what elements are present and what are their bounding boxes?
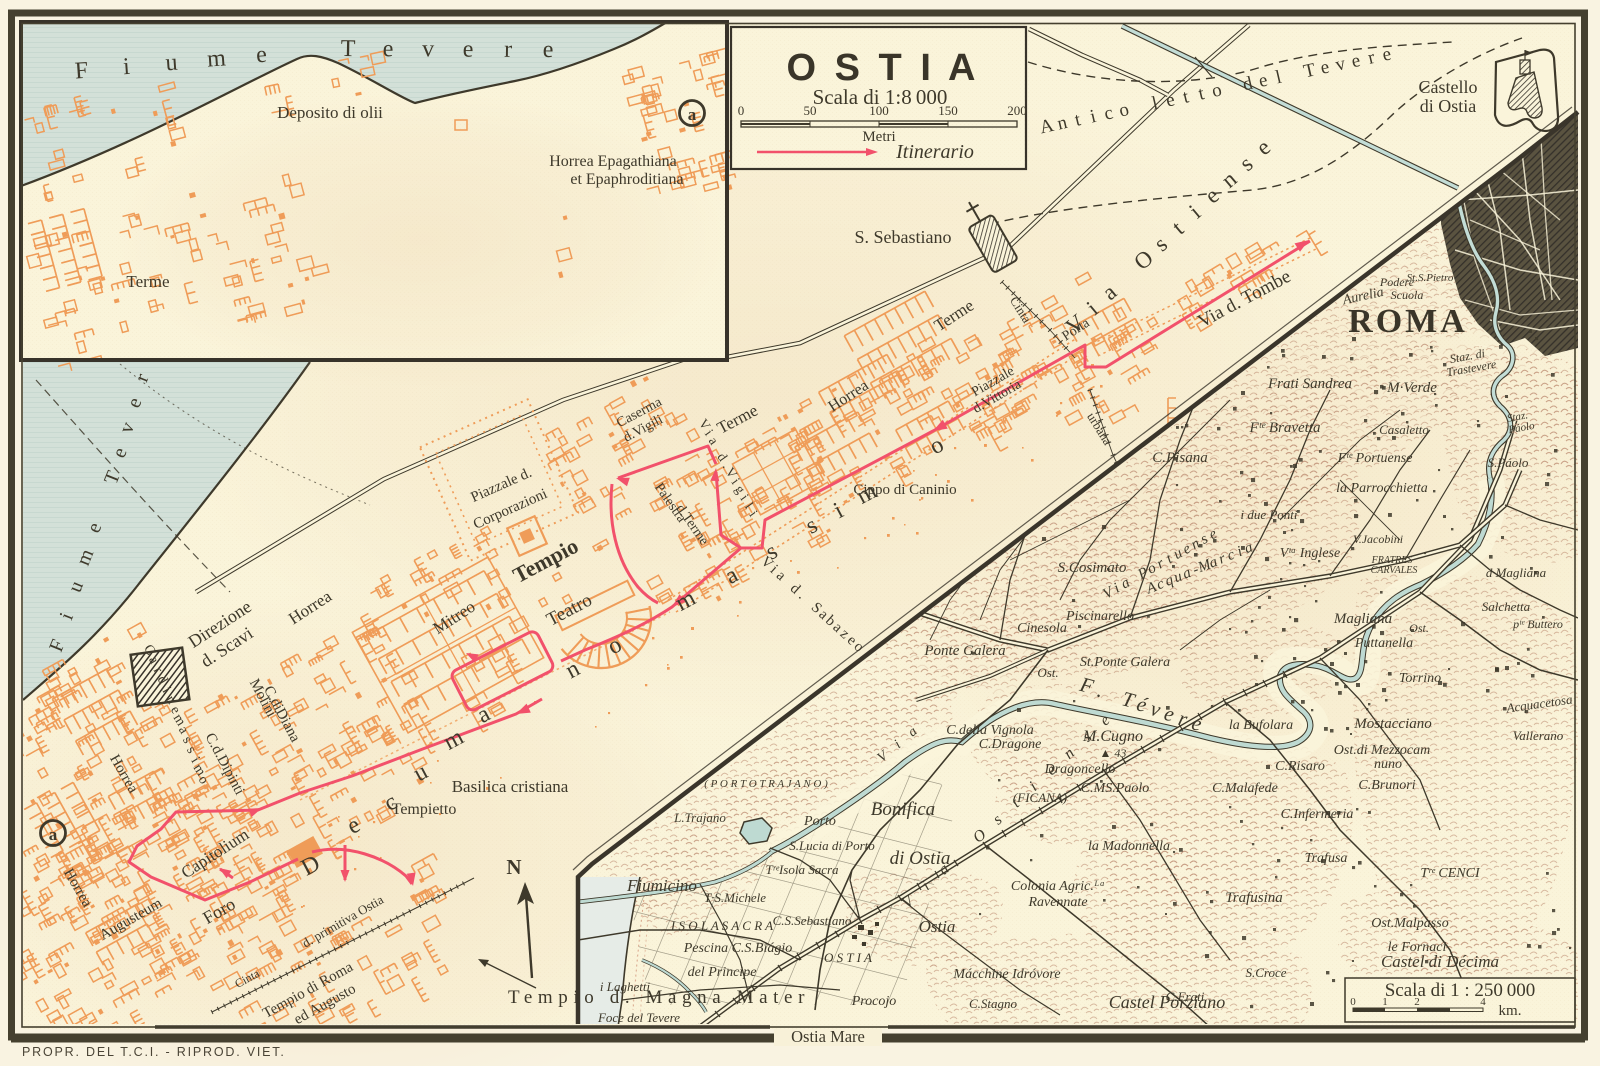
svg-text:Piscinarello: Piscinarello bbox=[1065, 609, 1134, 624]
svg-text:ROMA: ROMA bbox=[1348, 303, 1468, 340]
svg-text:0: 0 bbox=[1350, 996, 1356, 1008]
svg-text:Bonifica: Bonifica bbox=[871, 799, 935, 820]
svg-text:S. Sebastiano: S. Sebastiano bbox=[855, 227, 952, 247]
svg-text:Tempio d. Magna Mater: Tempio d. Magna Mater bbox=[508, 987, 810, 1008]
svg-text:del Principe: del Principe bbox=[688, 965, 757, 980]
svg-text:0: 0 bbox=[738, 103, 745, 118]
svg-text:Ravennate: Ravennate bbox=[1027, 895, 1087, 910]
svg-text:Vᵗᵃ Inglese: Vᵗᵃ Inglese bbox=[1280, 546, 1340, 561]
svg-text:a: a bbox=[688, 105, 697, 124]
svg-text:Scala di 1 : 250 000: Scala di 1 : 250 000 bbox=[1385, 980, 1536, 1001]
svg-text:Tʳᵉ CENCI: Tʳᵉ CENCI bbox=[1420, 866, 1481, 881]
svg-text:Trafusina: Trafusina bbox=[1225, 890, 1283, 906]
svg-text:Trafusa: Trafusa bbox=[1305, 851, 1348, 866]
svg-text:C.Dragone: C.Dragone bbox=[979, 737, 1042, 752]
svg-text:e: e bbox=[543, 37, 554, 63]
svg-text:Ost.di Mezzocam: Ost.di Mezzocam bbox=[1334, 743, 1430, 758]
svg-text:C.S.Sebastiano: C.S.Sebastiano bbox=[773, 913, 852, 928]
svg-text:Ost.Malpasso: Ost.Malpasso bbox=[1371, 916, 1448, 931]
svg-text:Ost.: Ost. bbox=[1409, 621, 1429, 635]
svg-text:Ponte Galera: Ponte Galera bbox=[923, 643, 1005, 659]
svg-text:Ost.: Ost. bbox=[1037, 665, 1058, 680]
svg-text:C.Infermeria: C.Infermeria bbox=[1281, 807, 1354, 822]
svg-text:C.della Vignola: C.della Vignola bbox=[946, 723, 1034, 738]
svg-text:C.Brunori: C.Brunori bbox=[1358, 778, 1415, 793]
svg-text:PROPR. DEL T.C.I. - RIPROD. VI: PROPR. DEL T.C.I. - RIPROD. VIET. bbox=[22, 1045, 286, 1059]
svg-text:O S T I A: O S T I A bbox=[824, 950, 872, 965]
svg-text:C.Malafede: C.Malafede bbox=[1212, 781, 1278, 796]
svg-text:Vallerano: Vallerano bbox=[1513, 728, 1564, 743]
svg-text:200: 200 bbox=[1007, 103, 1027, 118]
svg-text:50: 50 bbox=[804, 103, 817, 118]
svg-text:Casaletto: Casaletto bbox=[1379, 422, 1429, 437]
svg-text:( P O R T O T R A J A N O ): ( P O R T O T R A J A N O ) bbox=[704, 778, 828, 790]
svg-text:150: 150 bbox=[938, 103, 958, 118]
svg-text:TʳᵉIsola Sacra: TʳᵉIsola Sacra bbox=[765, 862, 839, 877]
svg-text:r: r bbox=[504, 37, 512, 63]
svg-text:a: a bbox=[49, 825, 58, 844]
svg-text:S.Cosimato: S.Cosimato bbox=[1058, 560, 1127, 576]
svg-text:Torrino: Torrino bbox=[1399, 671, 1441, 686]
svg-text:T·S.Michele: T·S.Michele bbox=[704, 890, 766, 905]
svg-text:Tempietto: Tempietto bbox=[392, 801, 457, 818]
svg-text:F: F bbox=[74, 58, 89, 85]
svg-text:2: 2 bbox=[1414, 996, 1420, 1008]
svg-text:u: u bbox=[165, 50, 179, 77]
svg-text:Procojo: Procojo bbox=[851, 994, 897, 1009]
svg-text:Fiumicino: Fiumicino bbox=[626, 876, 697, 895]
svg-text:T: T bbox=[341, 36, 356, 62]
svg-text:N: N bbox=[506, 855, 521, 879]
svg-text:Cinesola: Cinesola bbox=[1017, 621, 1067, 636]
svg-text:100: 100 bbox=[869, 103, 889, 118]
svg-text:V.Jacobini: V.Jacobini bbox=[1353, 532, 1403, 546]
svg-text:Itinerario: Itinerario bbox=[895, 141, 974, 163]
svg-text:L.Trajano: L.Trajano bbox=[673, 810, 726, 825]
svg-text:Castel di Décima: Castel di Décima bbox=[1381, 952, 1499, 971]
svg-text:1: 1 bbox=[1382, 996, 1388, 1008]
svg-text:S.Croce: S.Croce bbox=[1245, 965, 1286, 980]
svg-text:St.S.Pietro: St.S.Pietro bbox=[1407, 272, 1454, 284]
svg-text:Castello: Castello bbox=[1419, 77, 1478, 97]
svg-text:Ostia Mare: Ostia Mare bbox=[791, 1027, 865, 1046]
svg-text:d·Magliana: d·Magliana bbox=[1486, 565, 1547, 580]
svg-text:la Madonnella: la Madonnella bbox=[1088, 839, 1170, 854]
svg-text:Metri: Metri bbox=[862, 129, 895, 145]
svg-text:pᵗᵉ Buttero: pᵗᵉ Buttero bbox=[1512, 617, 1563, 631]
svg-text:C.Risaro: C.Risaro bbox=[1275, 759, 1325, 774]
svg-text:O S T I A: O S T I A bbox=[787, 47, 980, 89]
svg-text:Colonia Agric.ᴸᵃ: Colonia Agric.ᴸᵃ bbox=[1011, 879, 1105, 894]
svg-text:Fᵗᵉ Bravetta: Fᵗᵉ Bravetta bbox=[1248, 420, 1320, 436]
svg-text:Basilica cristiana: Basilica cristiana bbox=[452, 777, 569, 796]
svg-text:et Epaphroditiana: et Epaphroditiana bbox=[570, 171, 683, 188]
svg-text:St.Ponte Galera: St.Ponte Galera bbox=[1080, 655, 1170, 670]
svg-text:▲ 43: ▲ 43 bbox=[1100, 746, 1127, 760]
svg-text:m: m bbox=[206, 45, 227, 72]
svg-text:Pescina C.S.Biágio: Pescina C.S.Biágio bbox=[683, 941, 793, 956]
svg-text:Horrea Epagathiana: Horrea Epagathiana bbox=[549, 153, 676, 170]
svg-text:Scuola: Scuola bbox=[1391, 288, 1424, 302]
svg-text:I S O L A S A C R A: I S O L A S A C R A bbox=[670, 918, 773, 933]
svg-text:la Parrocchietta: la Parrocchietta bbox=[1336, 481, 1428, 496]
svg-text:C.Stagno: C.Stagno bbox=[969, 996, 1018, 1011]
svg-text:Puttanella: Puttanella bbox=[1354, 636, 1413, 651]
svg-text:e: e bbox=[463, 37, 474, 63]
svg-text:e: e bbox=[383, 36, 394, 62]
svg-text:la Bufolara: la Bufolara bbox=[1229, 718, 1293, 733]
svg-text:Foce del Tevere: Foce del Tevere bbox=[597, 1010, 680, 1025]
svg-text:Mostacciano: Mostacciano bbox=[1353, 716, 1432, 732]
svg-text:Magliana: Magliana bbox=[1333, 611, 1392, 627]
svg-text:Porto: Porto bbox=[803, 814, 836, 829]
svg-text:v: v bbox=[422, 36, 434, 62]
svg-text:Ostia: Ostia bbox=[919, 917, 956, 936]
svg-text:Castel Porziano: Castel Porziano bbox=[1109, 992, 1226, 1012]
svg-text:km.: km. bbox=[1499, 1003, 1522, 1019]
svg-text:4: 4 bbox=[1480, 996, 1486, 1008]
svg-text:M·Verde: M·Verde bbox=[1386, 380, 1437, 396]
svg-text:S.Páolo: S.Páolo bbox=[1488, 455, 1529, 470]
svg-text:i due Ponti: i due Ponti bbox=[1240, 507, 1297, 522]
svg-text:C.MS.Paolo: C.MS.Paolo bbox=[1081, 781, 1149, 796]
svg-text:Salchetta: Salchetta bbox=[1482, 599, 1531, 614]
svg-text:Fᵗᵉ Portuense: Fᵗᵉ Portuense bbox=[1337, 451, 1413, 466]
svg-text:e: e bbox=[255, 42, 267, 69]
svg-text:Deposito di olii: Deposito di olii bbox=[277, 103, 383, 122]
svg-text:Terme: Terme bbox=[126, 272, 169, 291]
svg-text:S.Lucia di Porto: S.Lucia di Porto bbox=[789, 838, 875, 853]
svg-text:nuno: nuno bbox=[1374, 757, 1402, 772]
svg-text:Frati Sandrea: Frati Sandrea bbox=[1267, 376, 1352, 392]
svg-text:Mácchine Idróvore: Mácchine Idróvore bbox=[952, 967, 1060, 982]
svg-text:CARVALES: CARVALES bbox=[1371, 565, 1418, 576]
svg-text:di Ostia: di Ostia bbox=[1420, 96, 1477, 116]
svg-text:C.Pisana: C.Pisana bbox=[1152, 450, 1207, 466]
